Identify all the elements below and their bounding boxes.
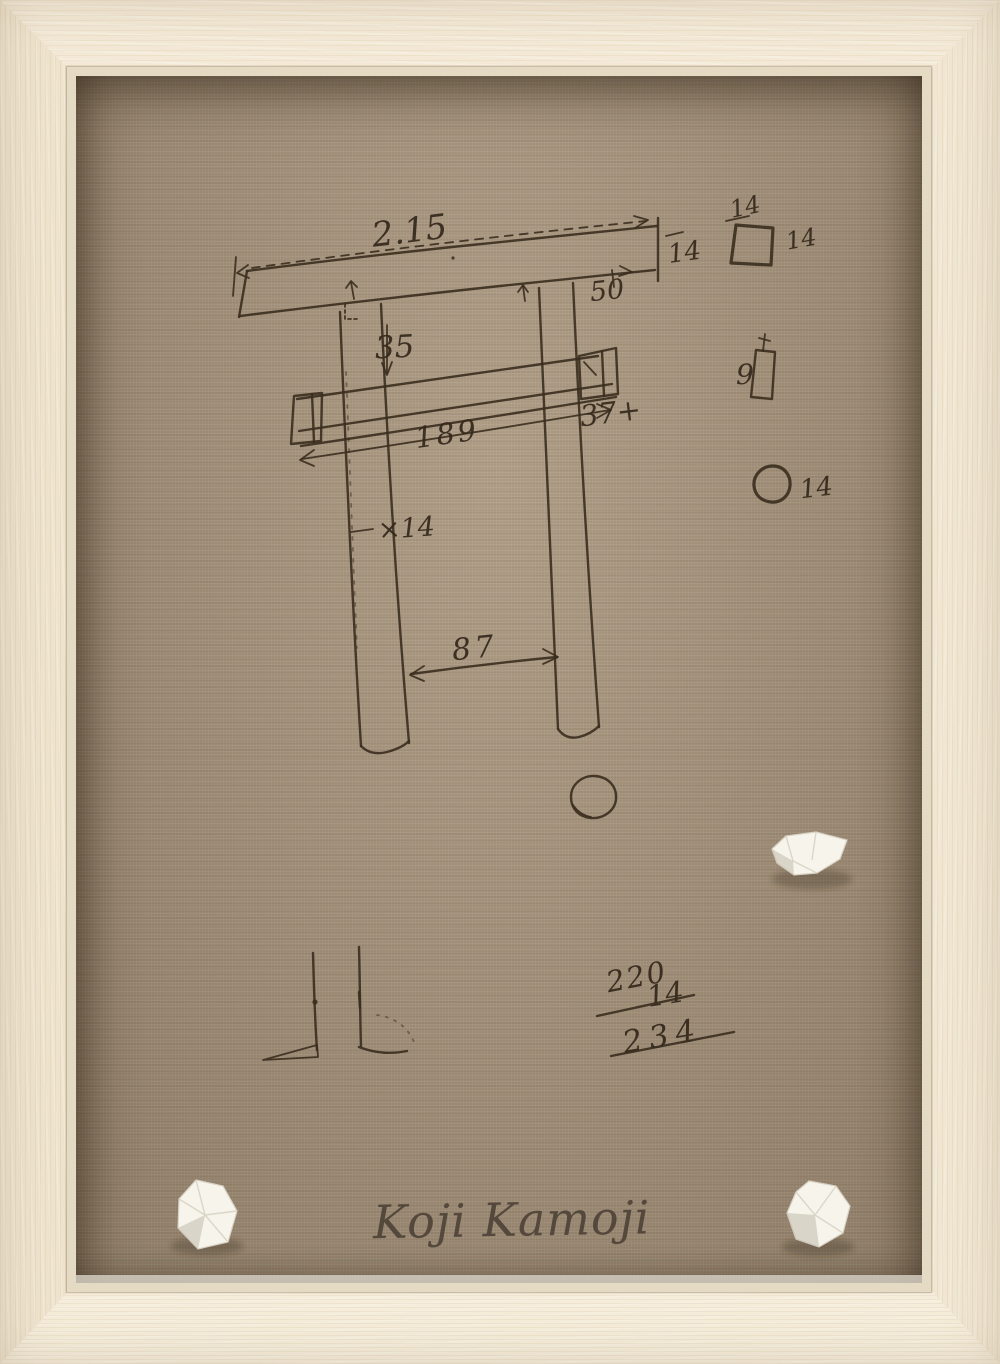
dim-label-overhang: 50 [588, 274, 625, 308]
kasagi-top-edge [247, 226, 657, 271]
post-width-tick [351, 529, 373, 532]
dim-label-nuki-end: 37+ [578, 392, 643, 433]
overhang-arrow [619, 266, 632, 276]
foot-left-wedge [263, 1045, 318, 1060]
right-post-bottom [558, 726, 599, 738]
bar-detail: 9 [736, 334, 775, 399]
calc-total: 234 [619, 1012, 705, 1062]
circle-outline [754, 466, 790, 502]
right-post-inner [573, 283, 599, 727]
bar-outline [751, 350, 775, 399]
dim-tick-left [233, 257, 236, 296]
bar-label: 9 [736, 358, 754, 391]
kasagi-beam: 2.15 14 50 [233, 207, 703, 319]
foot-dashed-arc [377, 1015, 414, 1042]
nuki-right-cap-inner [602, 351, 604, 396]
dim-label-drop: 35 [374, 328, 415, 366]
stone-middle-right [772, 832, 852, 889]
nuki-left-cap [291, 393, 322, 444]
square-detail: 14 14 [726, 190, 819, 265]
stone-bottom-left [171, 1180, 243, 1255]
artist-signature: Koji Kamoji [372, 1190, 651, 1249]
foot-left-knot [312, 999, 317, 1004]
nuki-right-hatch [584, 362, 596, 375]
square-side-label: 14 [784, 223, 819, 256]
circle-label: 14 [798, 472, 835, 506]
right-post-outer [539, 288, 558, 729]
foot-detail-sketch [263, 947, 414, 1060]
stone-bottom-right [782, 1181, 854, 1256]
ellipse-outline [571, 776, 616, 818]
nuki-left-cap-inner [312, 394, 314, 442]
calc-addend2: 14 [644, 974, 686, 1013]
post-width-note: ×14 [351, 511, 436, 546]
dim-label-nuki-length: 189 [413, 412, 481, 455]
dim-label-post-gap: 87 [450, 629, 500, 669]
circle-detail: 14 [754, 466, 835, 505]
dim-label-post-width: ×14 [377, 511, 436, 546]
dashed-bracket [345, 304, 357, 319]
left-post-bottom [361, 741, 409, 753]
left-post-outer [340, 312, 361, 746]
square-top-label: 14 [727, 190, 763, 224]
foot-right-knot [359, 992, 360, 1008]
dim-label-kasagi-end: 14 [666, 236, 703, 270]
drop-dimension: 35 [374, 325, 415, 375]
framed-artwork-photo: 2.15 14 50 35 [0, 0, 1000, 1364]
small-ellipse-detail [571, 776, 616, 818]
post-gap-dimension: 87 [410, 629, 558, 681]
kasagi-left-cap [239, 271, 247, 317]
torii-sketch-layer: 2.15 14 50 35 [0, 0, 1000, 1364]
square-outline [731, 225, 773, 265]
bar-top-arrow [763, 334, 765, 351]
ink-speck [451, 256, 454, 259]
foot-right-base [359, 1047, 407, 1053]
calc-block: 220 14 234 [597, 954, 734, 1061]
right-post [539, 283, 599, 738]
tick-above-14 [666, 232, 683, 236]
